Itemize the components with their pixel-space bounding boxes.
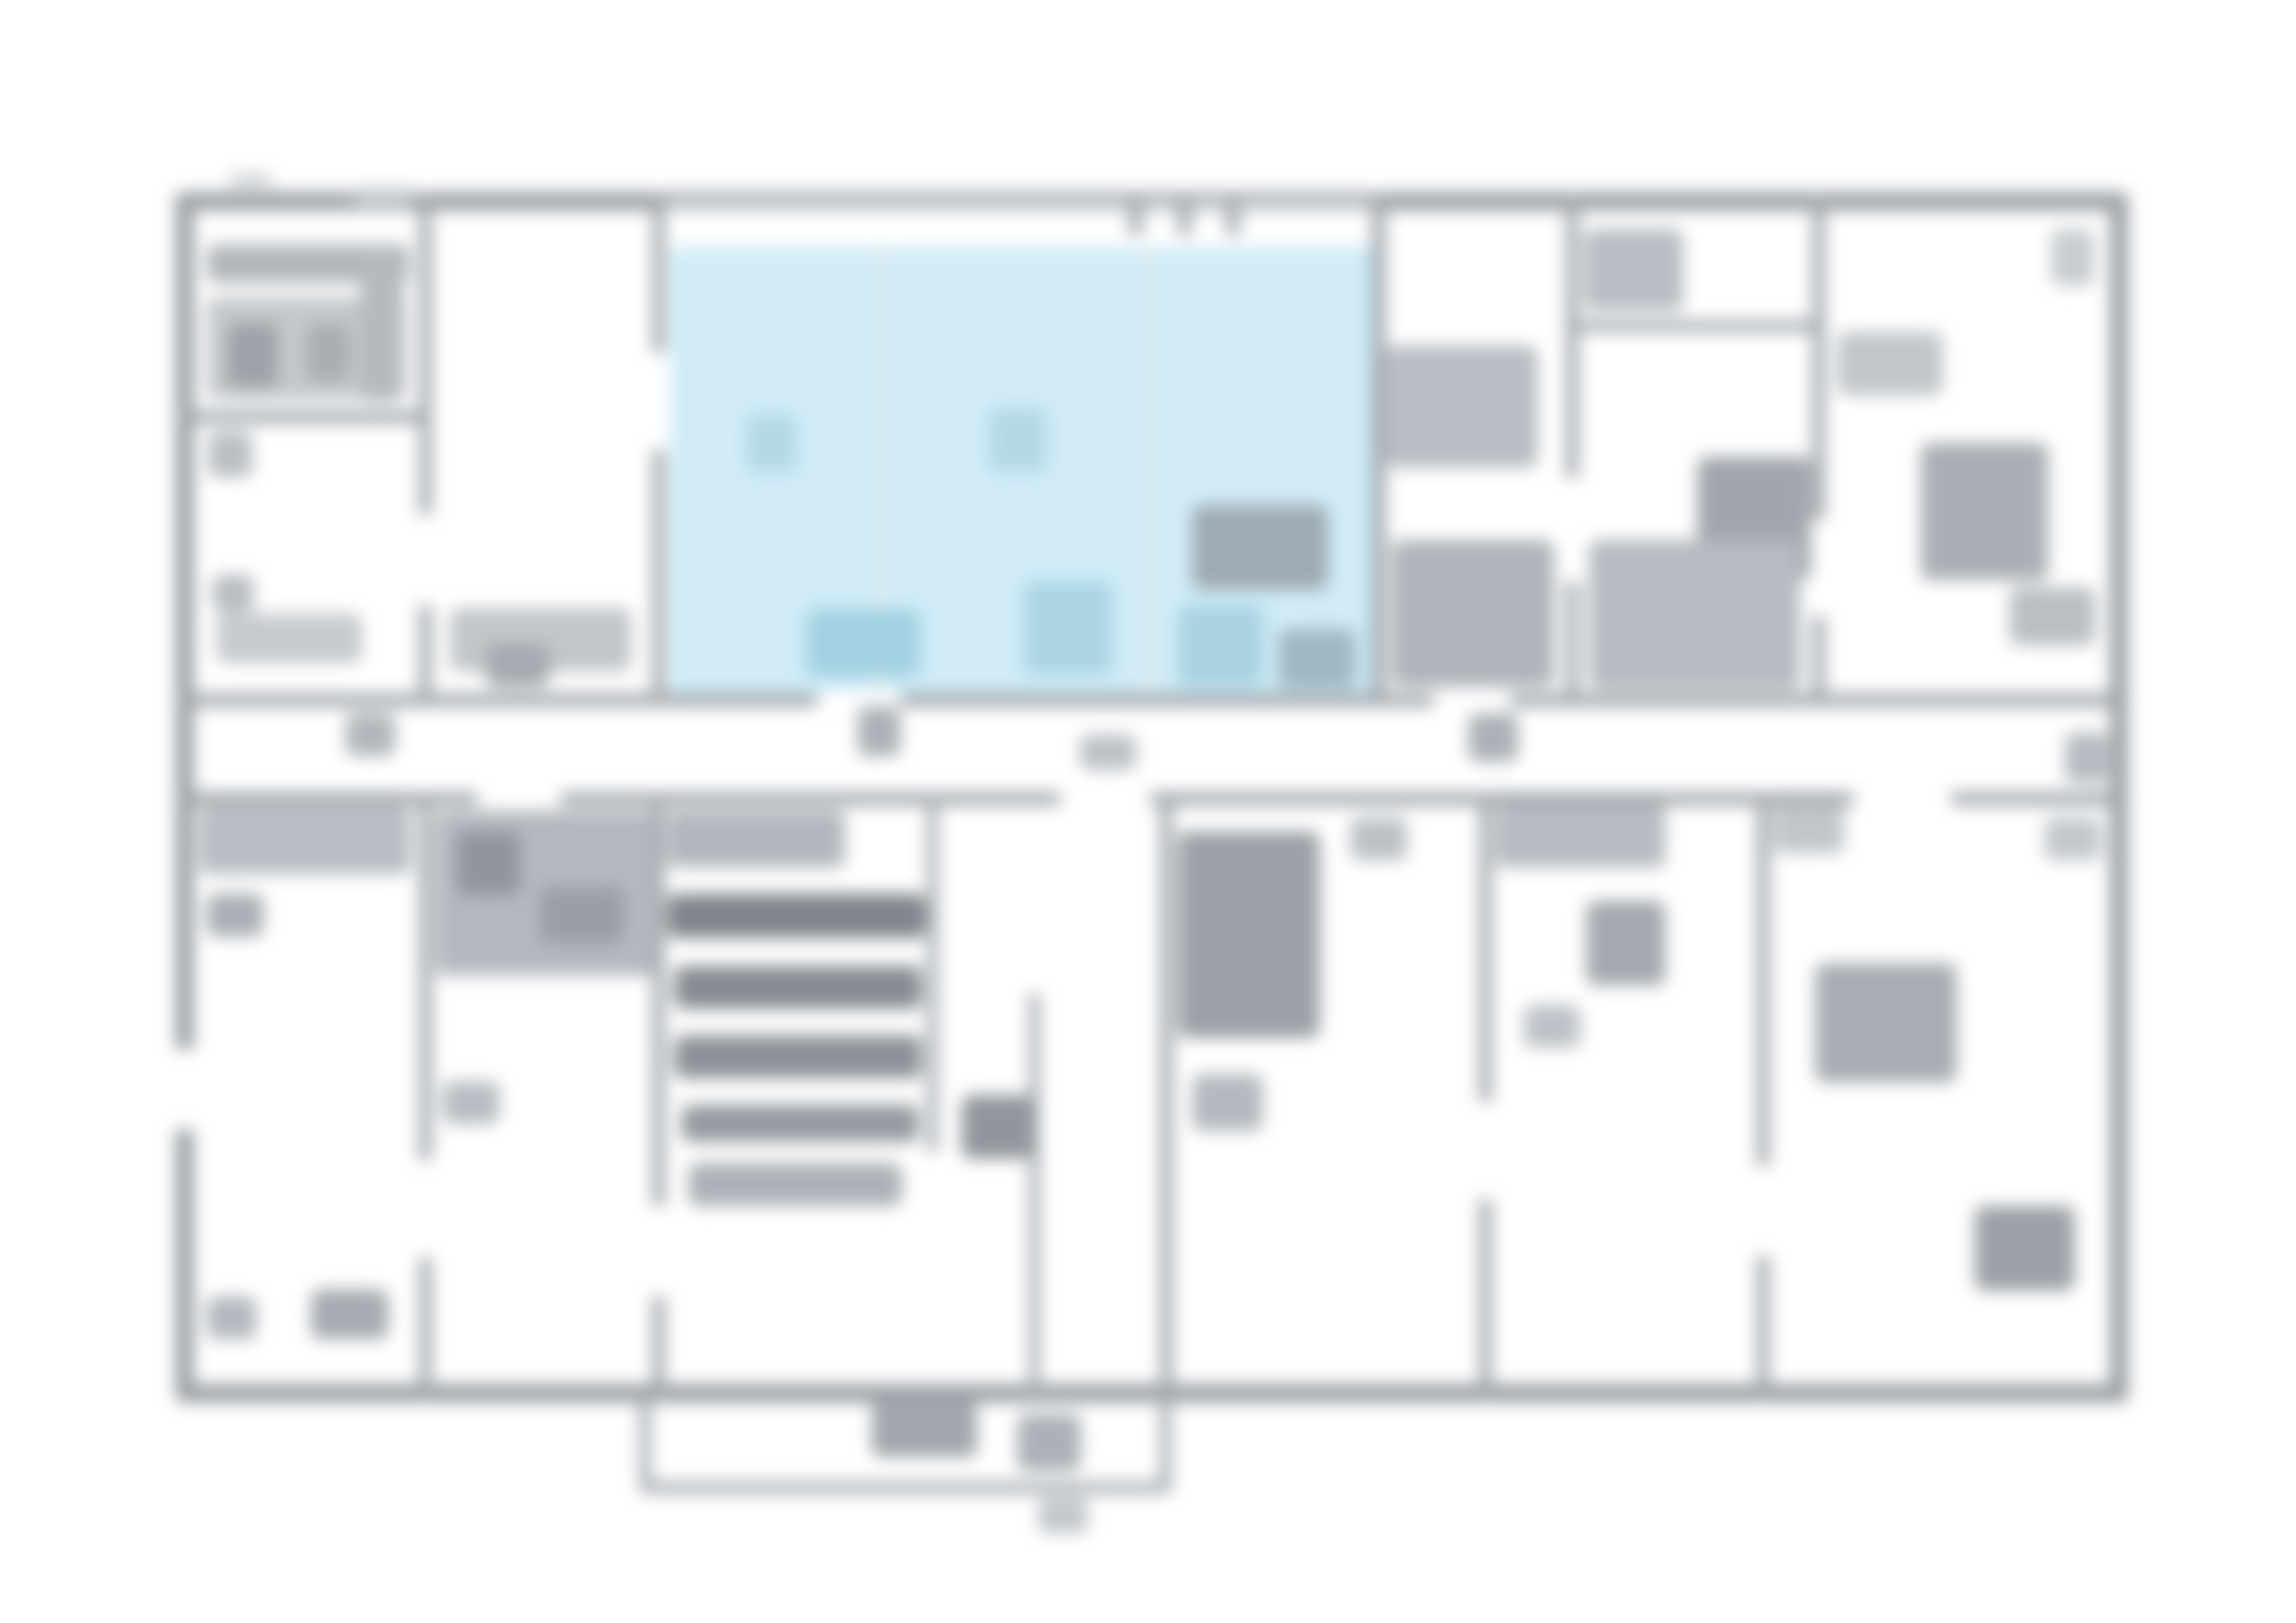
wall-v-bot-5 (1160, 792, 1173, 1397)
fixture-tl-1 (208, 432, 253, 477)
room-br2-mark-1 (1774, 804, 1844, 853)
wall-v-bot-7 (1757, 792, 1769, 1397)
room-f-top (1585, 229, 1683, 311)
porch-step-mark (1038, 1497, 1088, 1533)
wall-v-bot-2 (652, 792, 665, 1397)
suite-c-furniture-2 (1278, 629, 1356, 688)
kitchen-dark-2 (540, 887, 624, 944)
suite-b-furniture (1024, 581, 1112, 674)
suite-partition-2 (1143, 247, 1155, 695)
room-e-cluster-1 (1386, 346, 1538, 468)
door-gap-6 (416, 515, 434, 605)
corridor-wall-top (176, 694, 2128, 706)
suite-a-furniture (806, 609, 920, 677)
window-band-top (665, 199, 1372, 209)
room-bl-band (200, 806, 411, 874)
wall-v-top-1 (419, 192, 432, 706)
kitchen-dark-1 (457, 831, 520, 895)
door-gap-10 (416, 1160, 434, 1257)
dim-text-smudge-2 (229, 172, 273, 187)
stair-tread-3 (674, 1035, 921, 1078)
corridor-mark-2 (858, 706, 901, 756)
wall-v-bot-6 (1479, 792, 1492, 1397)
room-f-bottom (1589, 540, 1800, 690)
room-ctr-cluster (1178, 831, 1320, 1038)
room-g-low (2009, 587, 2095, 645)
room-bl-box (207, 894, 264, 937)
room-g-cluster (1921, 443, 2048, 580)
room-br2-cluster (1815, 963, 1957, 1082)
closet-box-3 (361, 244, 404, 401)
wall-h-topleft-divider (176, 411, 432, 423)
door-gap-14 (173, 1049, 196, 1130)
porch-fixture-2 (1017, 1414, 1081, 1471)
fixture-tl-2 (212, 575, 254, 612)
room-ctr-low (1192, 1074, 1263, 1131)
closet-box-2 (307, 323, 350, 382)
door-gap-8 (1563, 477, 1581, 581)
room-bl-low-2 (207, 1296, 257, 1339)
wall-v-bot-3 (927, 792, 938, 1153)
wall-v-bot-1 (419, 792, 432, 1397)
room-br2-corner (1975, 1206, 2075, 1291)
door-gap-3 (1060, 790, 1150, 810)
door-gap-13 (1754, 1166, 1772, 1256)
stair-tread-4 (681, 1105, 919, 1142)
stair-top-band (667, 810, 845, 867)
room-g-corner (2051, 229, 2094, 286)
porch-wall-bottom (640, 1482, 1171, 1493)
room-br2-mark-2 (2044, 817, 2101, 860)
fixture-col2-dark (486, 644, 550, 687)
door-gap-12 (1477, 1102, 1495, 1199)
corridor-mark-5 (2065, 733, 2108, 783)
kitchen-low (443, 1081, 500, 1124)
porch-wall-left (640, 1395, 651, 1492)
fixture-center-dark (962, 1095, 1032, 1159)
stair-tread-2 (674, 966, 921, 1009)
closet-box-1 (228, 323, 278, 387)
door-gap-9 (1810, 519, 1828, 616)
window-tick-2 (1177, 196, 1192, 236)
corridor-mark-3 (1080, 734, 1137, 770)
corridor-mark-4 (1468, 713, 1518, 762)
suite-c-furniture-1 (1178, 605, 1263, 686)
stair-landing (688, 1163, 902, 1206)
corridor-mark-1 (346, 713, 396, 756)
wall-v-top-3 (1372, 192, 1386, 706)
room-e-cluster-2 (1392, 540, 1554, 687)
window-tick-3 (1225, 196, 1241, 236)
window-tick-1 (1128, 196, 1143, 236)
suite-b-door (989, 408, 1046, 472)
room-br1-box (1586, 901, 1665, 985)
door-gap-11 (649, 1206, 667, 1296)
door-gap-4 (1434, 691, 1510, 712)
floor-plan (0, 0, 2296, 1623)
suite-c-cluster (1192, 505, 1328, 590)
room-g-shelf (1837, 332, 1943, 396)
wall-v-top-4 (1566, 192, 1579, 706)
wall-v-top-5 (1812, 192, 1825, 706)
porch-wall-right (1160, 1395, 1171, 1492)
dim-text-smudge-1 (352, 186, 412, 204)
room-br1-band (1496, 804, 1665, 867)
room-br1-mark (1524, 1005, 1581, 1048)
fixture-left-band (216, 613, 362, 663)
wall-h-right-divider (1566, 321, 1825, 332)
stair-tread-1 (667, 894, 926, 938)
suite-a-door (747, 415, 797, 472)
door-gap-7 (649, 352, 667, 450)
door-gap-1 (477, 790, 561, 810)
outer-wall-bottom (176, 1384, 2128, 1402)
room-bl-low-1 (311, 1289, 389, 1339)
page-background (0, 0, 2296, 1623)
porch-fixture-1 (871, 1400, 977, 1457)
room-ctr-mark (1350, 817, 1407, 860)
wall-v-bot-4 (1029, 992, 1040, 1395)
door-gap-5 (1854, 790, 1951, 810)
